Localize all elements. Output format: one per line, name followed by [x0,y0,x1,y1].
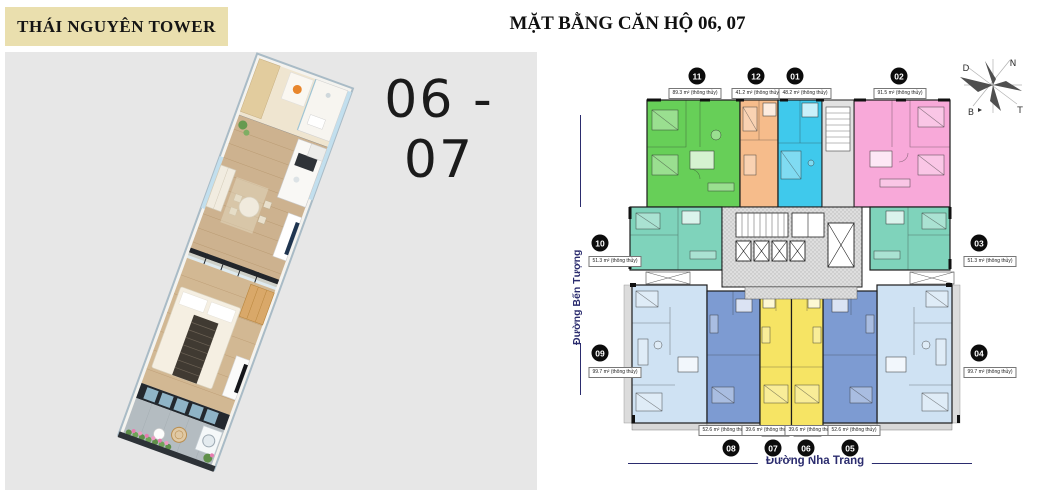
plan-unit-04 [877,285,952,423]
plan-unit-11 [647,100,740,207]
plan-unit-02 [854,100,950,207]
featured-unit-label: 06 - 07 [341,70,537,190]
plan-unit-01 [778,100,822,207]
unit-badge-05: 05 [842,440,859,457]
apartment-3d-render-panel: 06 - 07 [5,52,537,490]
street-label-bottom: Đường Nha Trang [758,455,872,467]
compass-west-letter: T [1016,106,1023,116]
unit-badge-01: 01 [787,68,804,85]
unit-badge-08: 08 [723,440,740,457]
unit-area-label-04: 99.7 m² (thông thủy) [963,367,1016,378]
plan-lobby [822,100,854,207]
unit-badge-04: 04 [971,345,988,362]
brand-badge: THÁI NGUYÊN TOWER [5,7,228,46]
plan-unit-08 [707,291,760,423]
street-left-line-bottom [580,343,581,395]
unit-area-label-11: 89.3 m² (thông thủy) [668,88,721,99]
unit-badge-02: 02 [891,68,908,85]
plan-void-left [646,272,690,284]
unit-area-label-01: 48.2 m² (thông thủy) [778,88,831,99]
unit-badge-11: 11 [689,68,706,85]
unit-badge-10: 10 [592,235,609,252]
plan-unit-12 [740,100,778,207]
compass-south-letter: B [968,108,974,118]
plan-unit-10 [630,207,722,270]
unit-area-label-09: 99.7 m² (thông thủy) [588,367,641,378]
street-left-line-top [580,115,581,207]
floor-plan-panel: D N B T 11 12 01 02 10 03 09 04 08 07 06… [540,55,1061,500]
plan-unit-03 [870,207,950,270]
unit-area-label-12: 41.2 m² (thông thủy) [731,88,784,99]
unit-badge-09: 09 [592,345,609,362]
compass-north-letter: N [1010,59,1017,69]
page: THÁI NGUYÊN TOWER MẶT BẰNG CĂN HỘ 06, 07 [0,0,1061,500]
plan-unit-05 [823,291,877,423]
compass-east-letter: D [963,64,970,74]
plan-core [722,207,862,299]
page-title: MẶT BẰNG CĂN HỘ 06, 07 [455,13,800,35]
unit-badge-07: 07 [765,440,782,457]
unit-badge-03: 03 [971,235,988,252]
plan-unit-09 [632,285,707,423]
unit-badge-06: 06 [798,440,815,457]
street-label-left: Đường Bến Tượng [571,205,583,345]
unit-area-label-03: 51.3 m² (thông thủy) [963,256,1016,267]
plan-unit-06 [792,293,824,436]
compass: D N B T [960,59,1023,118]
plan-void-right [910,272,954,284]
unit-area-label-05: 52.6 m² (thông thủy) [827,425,880,436]
unit-badge-12: 12 [748,68,765,85]
unit-area-label-02: 91.5 m² (thông thủy) [873,88,926,99]
plan-unit-07 [760,293,792,436]
brand-text: THÁI NGUYÊN TOWER [17,17,216,37]
unit-area-label-10: 51.3 m² (thông thủy) [588,256,641,267]
